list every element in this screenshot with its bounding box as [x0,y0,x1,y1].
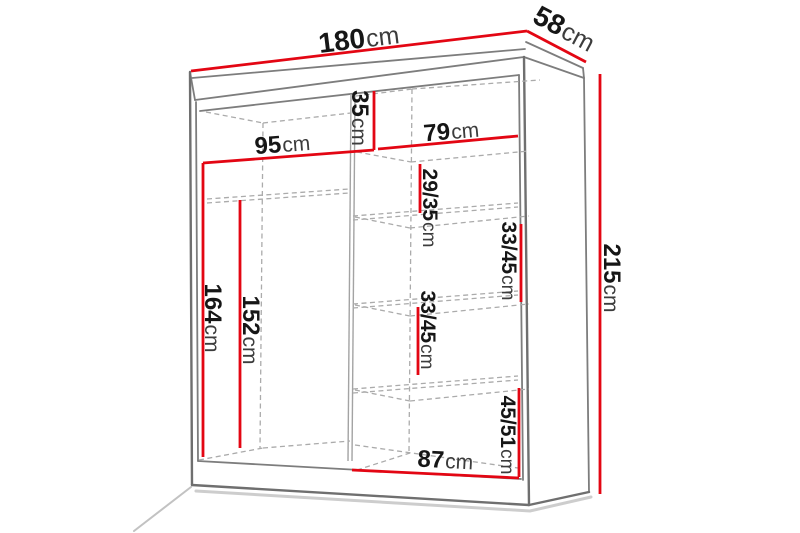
left-inner-edge [196,102,198,461]
top-board-right-bottom-edge [524,57,584,78]
dim-label-height: 215cm [598,243,625,312]
dim-label-width: 180cm [317,18,401,59]
dim-label-gap-lower: 33/45cm [416,291,439,370]
right-back-edge [584,78,589,492]
dim-label-depth: 58cm [528,0,600,58]
dim-label-top-shelf: 35cm [346,90,373,146]
dim-label-gap-upper: 33/45cm [497,222,520,301]
dimension-lines [191,31,600,494]
dim-label-right-width: 79cm [422,116,480,148]
dim-label-bottom-shelf-width: 87cm [417,446,474,476]
dim-label-hanging-height: 152cm [237,295,264,364]
dim-label-gap-top: 29/35cm [418,169,441,248]
diagram-canvas: 180cm 58cm 215cm 95cm 35cm 79cm 29/35cm … [0,0,800,533]
right-outer-edge [524,57,529,505]
dim-label-left-height: 164cm [199,283,226,352]
top-board-right-back-edge [583,68,584,78]
center-partition [348,94,355,461]
shadow-lines [134,487,591,531]
dim-label-bottom-compartment: 45/51cm [496,396,519,475]
dim-label-left-width: 95cm [254,129,312,160]
cabinet-outline [190,42,589,505]
left-outer-edge [190,72,192,485]
wardrobe-dimension-diagram: 180cm 58cm 215cm 95cm 35cm 79cm 29/35cm … [0,0,800,533]
